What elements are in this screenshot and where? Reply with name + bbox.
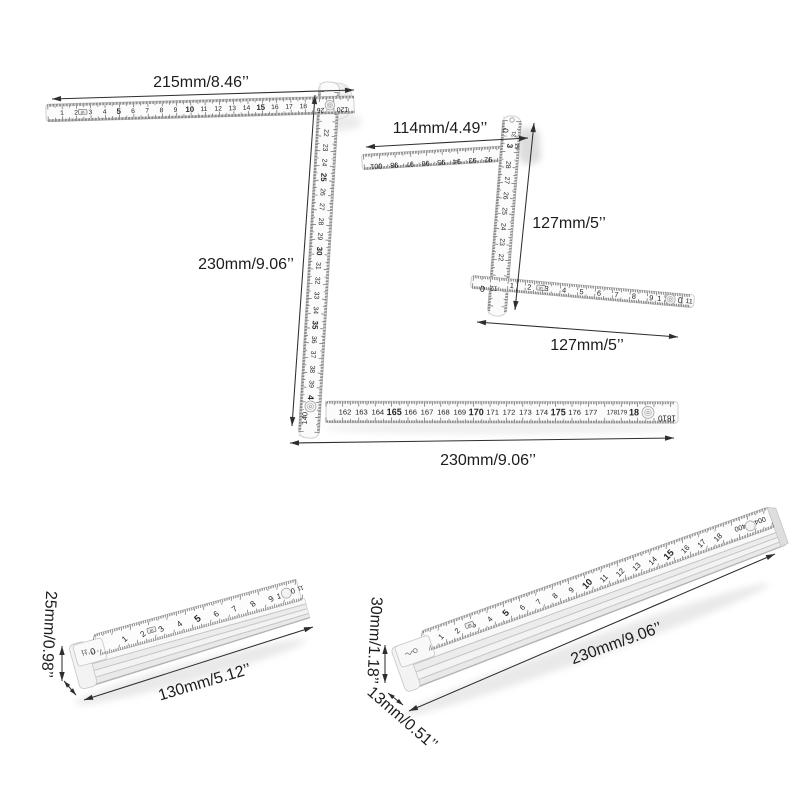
svg-text:2: 2 bbox=[527, 282, 532, 291]
svg-text:m: m bbox=[81, 110, 85, 115]
svg-text:37: 37 bbox=[309, 351, 316, 359]
svg-text:39: 39 bbox=[307, 380, 314, 388]
svg-text:170: 170 bbox=[469, 407, 484, 417]
svg-text:7: 7 bbox=[145, 108, 149, 115]
svg-text:8: 8 bbox=[631, 292, 636, 301]
svg-text:1810: 1810 bbox=[658, 413, 676, 422]
svg-text:28: 28 bbox=[317, 218, 324, 226]
svg-text:17: 17 bbox=[285, 104, 293, 111]
svg-text:4: 4 bbox=[306, 395, 316, 401]
svg-text:28: 28 bbox=[504, 161, 512, 169]
svg-text:2: 2 bbox=[74, 110, 78, 117]
svg-text:23: 23 bbox=[321, 144, 328, 152]
svg-text:001: 001 bbox=[370, 162, 383, 172]
svg-text:33: 33 bbox=[312, 291, 319, 299]
svg-text:172: 172 bbox=[503, 408, 516, 417]
svg-text:34: 34 bbox=[311, 306, 318, 314]
svg-text:12: 12 bbox=[489, 284, 497, 292]
svg-text:179: 179 bbox=[617, 410, 628, 417]
svg-text:14: 14 bbox=[243, 105, 251, 112]
svg-text:25: 25 bbox=[500, 207, 508, 215]
svg-text:92: 92 bbox=[484, 155, 493, 164]
svg-text:230mm/9.06’’: 230mm/9.06’’ bbox=[440, 452, 536, 469]
svg-text:1: 1 bbox=[60, 110, 64, 117]
svg-text:35: 35 bbox=[310, 320, 320, 330]
svg-text:167: 167 bbox=[421, 408, 434, 417]
svg-text:36: 36 bbox=[310, 336, 317, 344]
svg-text:6: 6 bbox=[131, 108, 135, 115]
svg-text:30: 30 bbox=[315, 247, 325, 257]
svg-text:98: 98 bbox=[390, 161, 399, 170]
svg-text:171: 171 bbox=[486, 408, 499, 417]
svg-text:127mm/5’’: 127mm/5’’ bbox=[550, 337, 624, 354]
svg-text:164: 164 bbox=[371, 408, 384, 417]
svg-text:114mm/4.49’’: 114mm/4.49’’ bbox=[393, 120, 488, 137]
svg-text:10: 10 bbox=[185, 105, 195, 114]
svg-text:38: 38 bbox=[308, 365, 315, 373]
svg-text:173: 173 bbox=[519, 408, 532, 417]
svg-text:162: 162 bbox=[339, 408, 352, 417]
svg-text:5: 5 bbox=[579, 287, 584, 296]
svg-text:1: 1 bbox=[657, 294, 662, 303]
svg-text:32: 32 bbox=[313, 277, 320, 285]
svg-text:230mm/9.06’’: 230mm/9.06’’ bbox=[198, 256, 294, 273]
svg-text:26: 26 bbox=[318, 188, 325, 196]
svg-text:7: 7 bbox=[614, 290, 619, 299]
svg-text:29: 29 bbox=[513, 143, 519, 150]
svg-text:26: 26 bbox=[316, 106, 324, 113]
svg-text:18: 18 bbox=[629, 408, 639, 418]
svg-text:93: 93 bbox=[468, 156, 477, 165]
svg-text:169: 169 bbox=[453, 408, 466, 417]
svg-text:176: 176 bbox=[568, 408, 581, 417]
svg-text:24: 24 bbox=[320, 158, 327, 166]
svg-text:8: 8 bbox=[159, 107, 163, 114]
svg-text:29: 29 bbox=[316, 232, 323, 240]
svg-text:4: 4 bbox=[103, 109, 107, 116]
svg-text:27: 27 bbox=[318, 203, 325, 211]
svg-text:1: 1 bbox=[509, 281, 514, 290]
svg-text:174: 174 bbox=[535, 408, 548, 417]
svg-text:215mm/8.46’’: 215mm/8.46’’ bbox=[153, 74, 249, 91]
svg-text:120: 120 bbox=[336, 105, 348, 112]
svg-text:9: 9 bbox=[649, 293, 654, 302]
svg-text:16: 16 bbox=[271, 104, 279, 111]
svg-text:3: 3 bbox=[88, 109, 92, 116]
svg-text:6: 6 bbox=[597, 289, 602, 298]
svg-text:11: 11 bbox=[685, 298, 693, 306]
svg-text:18: 18 bbox=[300, 103, 308, 110]
svg-text:163: 163 bbox=[355, 408, 368, 417]
svg-text:22: 22 bbox=[497, 253, 505, 261]
svg-text:97: 97 bbox=[406, 160, 415, 169]
svg-text:22: 22 bbox=[322, 129, 329, 137]
svg-text:94: 94 bbox=[453, 157, 462, 166]
svg-text:96: 96 bbox=[421, 159, 430, 168]
svg-text:13: 13 bbox=[229, 105, 237, 112]
svg-text:177: 177 bbox=[585, 408, 598, 417]
svg-text:27: 27 bbox=[503, 176, 511, 184]
svg-text:25: 25 bbox=[319, 173, 329, 183]
svg-text:95: 95 bbox=[437, 158, 446, 167]
svg-text:12: 12 bbox=[214, 106, 222, 113]
svg-text:31: 31 bbox=[314, 262, 321, 270]
svg-text:9: 9 bbox=[174, 107, 178, 114]
svg-text:26: 26 bbox=[501, 192, 509, 200]
svg-text:165: 165 bbox=[387, 407, 402, 417]
svg-text:15: 15 bbox=[256, 103, 266, 112]
svg-text:175: 175 bbox=[551, 408, 566, 418]
svg-text:23: 23 bbox=[498, 238, 506, 246]
svg-text:168: 168 bbox=[437, 408, 450, 417]
svg-text:4: 4 bbox=[562, 285, 567, 294]
svg-text:140: 140 bbox=[300, 412, 310, 425]
svg-text:24: 24 bbox=[499, 223, 507, 231]
svg-text:31: 31 bbox=[511, 131, 517, 138]
svg-text:127mm/5’’: 127mm/5’’ bbox=[532, 215, 606, 232]
svg-text:11: 11 bbox=[200, 106, 207, 113]
svg-text:166: 166 bbox=[404, 408, 417, 417]
